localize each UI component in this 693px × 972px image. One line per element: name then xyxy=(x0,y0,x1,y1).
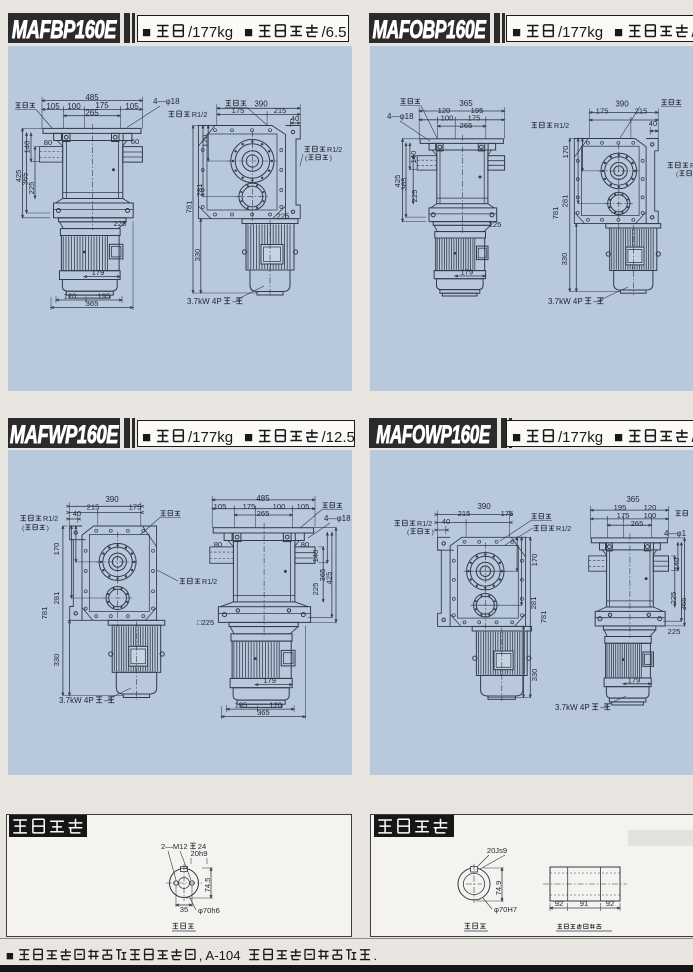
svg-text:φ70H7: φ70H7 xyxy=(494,905,517,914)
svg-text:265: 265 xyxy=(631,519,644,528)
svg-text:179: 179 xyxy=(263,676,276,685)
svg-text:281: 281 xyxy=(195,184,204,197)
svg-text:170: 170 xyxy=(201,135,210,148)
svg-text:R1/2: R1/2 xyxy=(556,524,571,533)
svg-text:2—M12: 2—M12 xyxy=(161,842,188,851)
svg-text:74.5: 74.5 xyxy=(203,878,212,893)
svg-text:281: 281 xyxy=(529,597,538,610)
svg-text:365: 365 xyxy=(86,299,99,308)
svg-text:(: ( xyxy=(22,525,25,532)
svg-text:170: 170 xyxy=(52,543,61,556)
svg-text:225: 225 xyxy=(27,182,36,195)
svg-text:170: 170 xyxy=(561,146,570,159)
svg-text:120: 120 xyxy=(64,292,77,301)
svg-text:4—φ18: 4—φ18 xyxy=(387,112,414,121)
svg-text:/12.5: /12.5 xyxy=(322,429,355,446)
svg-text:781: 781 xyxy=(551,207,560,220)
svg-text:330: 330 xyxy=(52,654,61,667)
svg-text:390: 390 xyxy=(105,495,119,504)
svg-text:195: 195 xyxy=(98,292,111,301)
svg-text:140: 140 xyxy=(311,550,320,563)
svg-text:): ) xyxy=(47,525,49,532)
svg-text:MAFBP160E: MAFBP160E xyxy=(12,15,118,44)
svg-text:781: 781 xyxy=(185,201,194,214)
svg-text:365: 365 xyxy=(400,178,409,191)
svg-text:100: 100 xyxy=(273,502,286,511)
svg-text:140: 140 xyxy=(23,141,32,154)
svg-text:74.9: 74.9 xyxy=(494,881,503,896)
svg-text:179: 179 xyxy=(92,268,105,277)
svg-text:60: 60 xyxy=(131,137,139,146)
svg-text:170: 170 xyxy=(530,554,539,567)
svg-text:265: 265 xyxy=(257,509,270,518)
svg-text:100: 100 xyxy=(441,114,454,123)
svg-text:485: 485 xyxy=(256,494,270,503)
svg-text:R1/2: R1/2 xyxy=(417,519,432,528)
svg-text:781: 781 xyxy=(539,611,548,624)
svg-text:3.7kW 4P: 3.7kW 4P xyxy=(59,696,94,705)
svg-text:225: 225 xyxy=(489,220,502,229)
svg-text:): ) xyxy=(432,529,434,536)
svg-text:225: 225 xyxy=(669,592,678,605)
svg-text:390: 390 xyxy=(477,502,491,511)
svg-text:105: 105 xyxy=(297,502,310,511)
svg-text:80: 80 xyxy=(301,540,309,549)
svg-text:140: 140 xyxy=(672,558,681,571)
svg-text:R1/2: R1/2 xyxy=(554,121,569,130)
svg-text:215: 215 xyxy=(87,503,100,512)
svg-text:105: 105 xyxy=(214,502,227,511)
svg-text:/177kg: /177kg xyxy=(188,429,233,446)
svg-text:3.7kW 4P: 3.7kW 4P xyxy=(548,297,583,306)
svg-text:330: 330 xyxy=(193,249,202,262)
svg-text:■: ■ xyxy=(244,429,253,446)
svg-text:330: 330 xyxy=(560,253,569,266)
svg-text:35: 35 xyxy=(180,905,188,914)
svg-text:215: 215 xyxy=(274,106,287,115)
svg-text:■: ■ xyxy=(614,429,623,446)
svg-text:281: 281 xyxy=(52,592,61,605)
svg-text:390: 390 xyxy=(615,100,629,109)
svg-text:92: 92 xyxy=(555,899,563,908)
svg-text:225: 225 xyxy=(410,190,419,203)
svg-text:4—φ18: 4—φ18 xyxy=(153,97,180,106)
svg-text:20h9: 20h9 xyxy=(191,849,208,858)
svg-text:92: 92 xyxy=(606,899,614,908)
svg-text:281: 281 xyxy=(561,195,570,208)
svg-text:175: 175 xyxy=(501,509,514,518)
svg-text:225: 225 xyxy=(311,583,320,596)
svg-text:/177kg: /177kg xyxy=(558,429,603,446)
svg-text:3.7kW 4P: 3.7kW 4P xyxy=(555,703,590,712)
svg-text:R1/2: R1/2 xyxy=(327,145,342,154)
svg-text:/177kg: /177kg xyxy=(558,24,603,41)
svg-text:■: ■ xyxy=(512,24,521,41)
svg-text:): ) xyxy=(330,155,332,162)
svg-text:225: 225 xyxy=(668,627,681,636)
svg-text:R1/2: R1/2 xyxy=(192,110,208,119)
svg-text:225: 225 xyxy=(114,219,127,228)
svg-text:120: 120 xyxy=(269,701,282,710)
svg-text:140: 140 xyxy=(409,151,418,164)
svg-text:R1/2: R1/2 xyxy=(202,577,217,586)
svg-text:365: 365 xyxy=(626,495,640,504)
svg-text:φ70h6: φ70h6 xyxy=(198,906,220,915)
svg-text:40: 40 xyxy=(73,509,81,518)
svg-text:MAFOWP160E: MAFOWP160E xyxy=(376,421,491,449)
svg-text:175: 175 xyxy=(617,511,630,520)
svg-text:215: 215 xyxy=(635,107,648,116)
svg-text:91: 91 xyxy=(580,899,588,908)
svg-text:4—φ18: 4—φ18 xyxy=(324,514,351,523)
svg-text:■: ■ xyxy=(614,24,623,41)
svg-text:(: ( xyxy=(676,171,679,178)
svg-text:80: 80 xyxy=(44,138,52,147)
svg-text:MAFWP160E: MAFWP160E xyxy=(10,420,120,449)
svg-text:365: 365 xyxy=(679,598,688,611)
svg-text:4—φ1: 4—φ1 xyxy=(664,529,687,538)
svg-text:105: 105 xyxy=(46,102,60,111)
svg-text:.: . xyxy=(373,948,377,963)
svg-text:, A-104: , A-104 xyxy=(199,948,241,963)
svg-text:MAFOBP160E: MAFOBP160E xyxy=(372,15,486,44)
svg-text:179: 179 xyxy=(628,675,641,684)
svg-text:175: 175 xyxy=(232,106,245,115)
svg-text:425: 425 xyxy=(325,572,334,585)
svg-text:100: 100 xyxy=(67,102,81,111)
svg-text:/177kg: /177kg xyxy=(188,24,233,41)
svg-text:330: 330 xyxy=(530,669,539,682)
svg-text:265: 265 xyxy=(460,121,473,130)
svg-text:40: 40 xyxy=(442,517,450,526)
svg-text:175: 175 xyxy=(129,503,142,512)
svg-text:781: 781 xyxy=(40,607,49,620)
svg-text:□225: □225 xyxy=(197,618,214,627)
svg-text:(: ( xyxy=(407,529,410,536)
svg-text:225: 225 xyxy=(277,212,290,221)
svg-text:20Js9: 20Js9 xyxy=(487,846,507,855)
svg-text:390: 390 xyxy=(254,100,268,109)
svg-text:40: 40 xyxy=(291,114,299,123)
svg-text:105: 105 xyxy=(125,102,139,111)
svg-text:3.7kW 4P: 3.7kW 4P xyxy=(187,297,222,306)
svg-text:80: 80 xyxy=(214,540,222,549)
svg-text:40: 40 xyxy=(649,119,657,128)
svg-text:179: 179 xyxy=(460,268,473,277)
svg-text:■: ■ xyxy=(6,948,14,963)
svg-text:215: 215 xyxy=(458,509,471,518)
svg-text:■: ■ xyxy=(142,24,151,41)
svg-text:/6.5: /6.5 xyxy=(322,24,347,41)
svg-text:195: 195 xyxy=(235,701,248,710)
svg-text:R1/2: R1/2 xyxy=(43,514,58,523)
svg-text:175: 175 xyxy=(596,107,609,116)
svg-text:100: 100 xyxy=(644,511,657,520)
svg-text:175: 175 xyxy=(243,502,256,511)
svg-text:365: 365 xyxy=(257,708,270,717)
svg-text:■: ■ xyxy=(512,429,521,446)
svg-text:265: 265 xyxy=(85,109,99,118)
svg-text:(: ( xyxy=(305,155,308,162)
svg-text:■: ■ xyxy=(244,24,253,41)
svg-text:■: ■ xyxy=(142,429,151,446)
